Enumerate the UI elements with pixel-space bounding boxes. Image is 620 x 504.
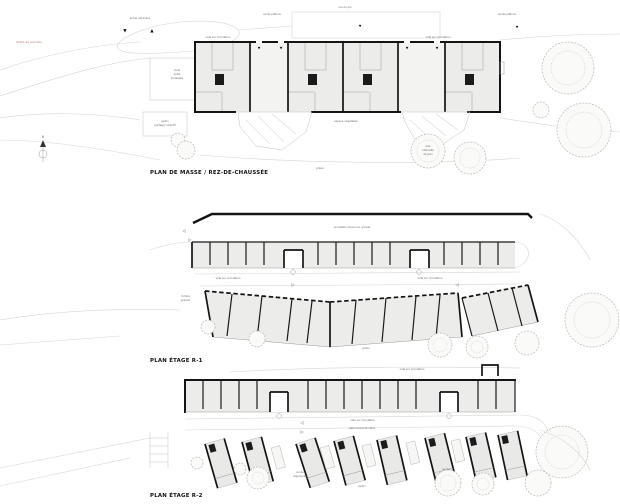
site-plan-title: PLAN DE MASSE / REZ-DE-CHAUSSÉE (150, 168, 268, 176)
r1-plan-title: PLAN ÉTAGE R-1 (150, 356, 203, 364)
shared-garden-label-1: jardin (160, 119, 169, 123)
bike-parking-label: stationnement vélos (348, 426, 375, 430)
main-building-footprint: ▼ ▼ ▼ ▼ (195, 40, 504, 112)
roof-label-2: gravier (181, 298, 191, 302)
lane-direction-icon: ◁ (299, 420, 303, 425)
ramp-direction-icon: ▷ (188, 237, 192, 242)
access-pedestrians-label-right: accès piétons (498, 12, 516, 16)
playground-label-1: aire (426, 144, 431, 148)
void-circulation-label-right: vide sur circulation (350, 418, 375, 422)
parked-car (406, 441, 420, 464)
entry-arrow-icon: ▼ (406, 46, 409, 50)
stair-core (269, 392, 289, 418)
street-label: rue du pin (338, 5, 352, 9)
esplanade-entry-arrow-icon: ▼ (359, 24, 362, 28)
shared-garden: jardin partagé collectif (143, 112, 187, 136)
roof-label-1: toiture (181, 294, 190, 298)
r2-parking-band (185, 380, 515, 418)
esplanade-entry-arrow-icon: ▼ (516, 25, 519, 29)
green-space-label: espace végétalisé (334, 119, 358, 123)
exterior-stairs (150, 432, 168, 468)
parked-car (451, 439, 465, 462)
void-circulation-label-left: vide sur circulation (206, 35, 231, 39)
access-arrow-down-icon: ▼ (123, 29, 127, 34)
terraced-ramp-left (238, 112, 312, 150)
entry-arrow-icon: ▼ (436, 46, 439, 50)
r1-parking-band (192, 242, 515, 274)
playground-label-3: de jeux (423, 152, 433, 156)
site-plan: ▼ ▼ rue du pin accès véhicules accès pié… (0, 5, 620, 176)
void-circulation-label: vide sur circulation (418, 276, 443, 280)
architectural-drawing: ▼ ▼ rue du pin accès véhicules accès pié… (0, 0, 620, 504)
ramp-direction-icon: ◁ (181, 228, 185, 233)
access-pedestrians-label-left: accès piétons (263, 12, 281, 16)
dwelling-unit (205, 438, 237, 488)
bike-room-label-3: poubelles (171, 76, 184, 80)
bike-room-label-1: local (174, 68, 180, 72)
dwelling-unit (377, 436, 407, 485)
parked-car (271, 446, 285, 470)
walkway-direction-icon: ▷ (291, 282, 295, 287)
stair-core (409, 250, 430, 274)
garden-label: jardin (357, 484, 366, 488)
entry-arrow-icon: ▼ (280, 46, 283, 50)
north-arrow-icon: N (39, 135, 47, 162)
shared-garden-label-2: partagé collectif (154, 123, 175, 127)
r2-plan: vide sur circulation (0, 365, 590, 499)
parcel-boundary-label: limite de parcelle (16, 40, 42, 44)
void-circulation-label-right: vide sur circulation (426, 35, 451, 39)
parked-car (362, 444, 376, 468)
shelter-label: préau (316, 166, 324, 170)
bike-room-label-2: vélos (174, 72, 181, 76)
stair-core (283, 250, 304, 274)
walkway-direction-icon: ◁ (454, 282, 458, 287)
north-letter: N (42, 135, 45, 139)
drawing-sheet: ▼ ▼ rue du pin accès véhicules accès pié… (0, 0, 620, 504)
access-label-left-1: accès (296, 470, 304, 474)
lane-direction-icon: ▷ (300, 429, 304, 434)
r2-plan-title: PLAN ÉTAGE R-2 (150, 491, 203, 499)
retaining-wall (193, 214, 532, 223)
gravel-path-label: circulation douce sur gravier (333, 225, 371, 229)
bike-refuse-room: local vélos poubelles (150, 58, 195, 100)
garden-label: jardin (361, 346, 370, 350)
entry-arrow-icon: ▼ (258, 46, 261, 50)
rooftop-core (482, 365, 498, 376)
access-vehicles-label: accès véhicules (130, 16, 151, 20)
stair-core-left (250, 42, 288, 112)
r1-plan: circulation douce sur gravier ◁ ▷ (0, 214, 619, 364)
dwelling-unit (498, 431, 527, 480)
dwelling-unit (334, 436, 365, 486)
stair-core (439, 392, 459, 418)
access-label-left-2: logements (293, 474, 307, 478)
void-circulation-label-top: vide sur circulation (400, 367, 425, 371)
esplanade-outline (292, 12, 440, 38)
playground-label-2: naturelle (422, 148, 434, 152)
stair-core-right (398, 42, 445, 112)
access-arrow-up-icon: ▲ (150, 29, 154, 34)
void-circulation-label: vide sur circulation (216, 276, 241, 280)
